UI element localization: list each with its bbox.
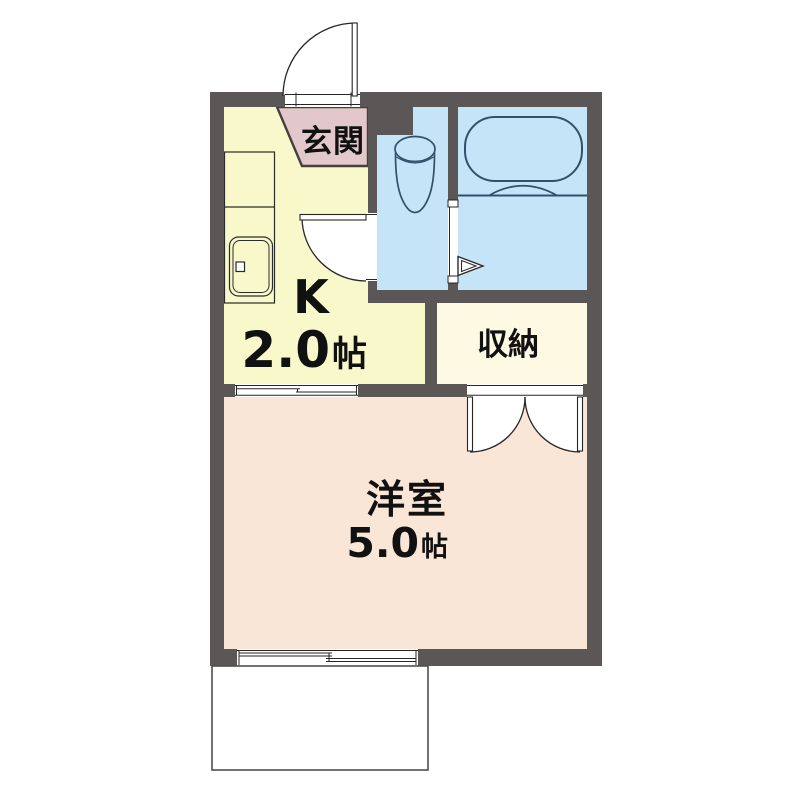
kitchen-label: K xyxy=(293,270,331,324)
entrance-door xyxy=(283,23,360,107)
toilet-door-leaf xyxy=(300,215,366,221)
closet-door-leaf-right xyxy=(578,397,583,451)
faucet-icon xyxy=(236,262,245,272)
balcony xyxy=(212,666,428,770)
western-room-area-unit: 帖 xyxy=(421,532,448,563)
western-room-label: 洋室 xyxy=(366,478,448,523)
genkan-label: 玄関 xyxy=(301,124,365,160)
entrance-door-leaf xyxy=(352,23,357,96)
western-room-area: 5.0 xyxy=(346,519,419,567)
floor-plan: 玄関 K 2.0 帖 収納 洋室 5.0 帖 xyxy=(0,0,800,800)
kitchen-area: 2.0 xyxy=(241,321,330,379)
closet-door-leaf-left xyxy=(468,397,473,451)
kitchen-area-unit: 帖 xyxy=(332,335,367,375)
storage-label: 収納 xyxy=(477,327,539,363)
floor-plan-drawing: 玄関 K 2.0 帖 収納 洋室 5.0 帖 xyxy=(0,0,800,800)
sliding-door xyxy=(235,384,358,397)
entrance-door-arc xyxy=(283,23,356,96)
window xyxy=(237,649,418,666)
